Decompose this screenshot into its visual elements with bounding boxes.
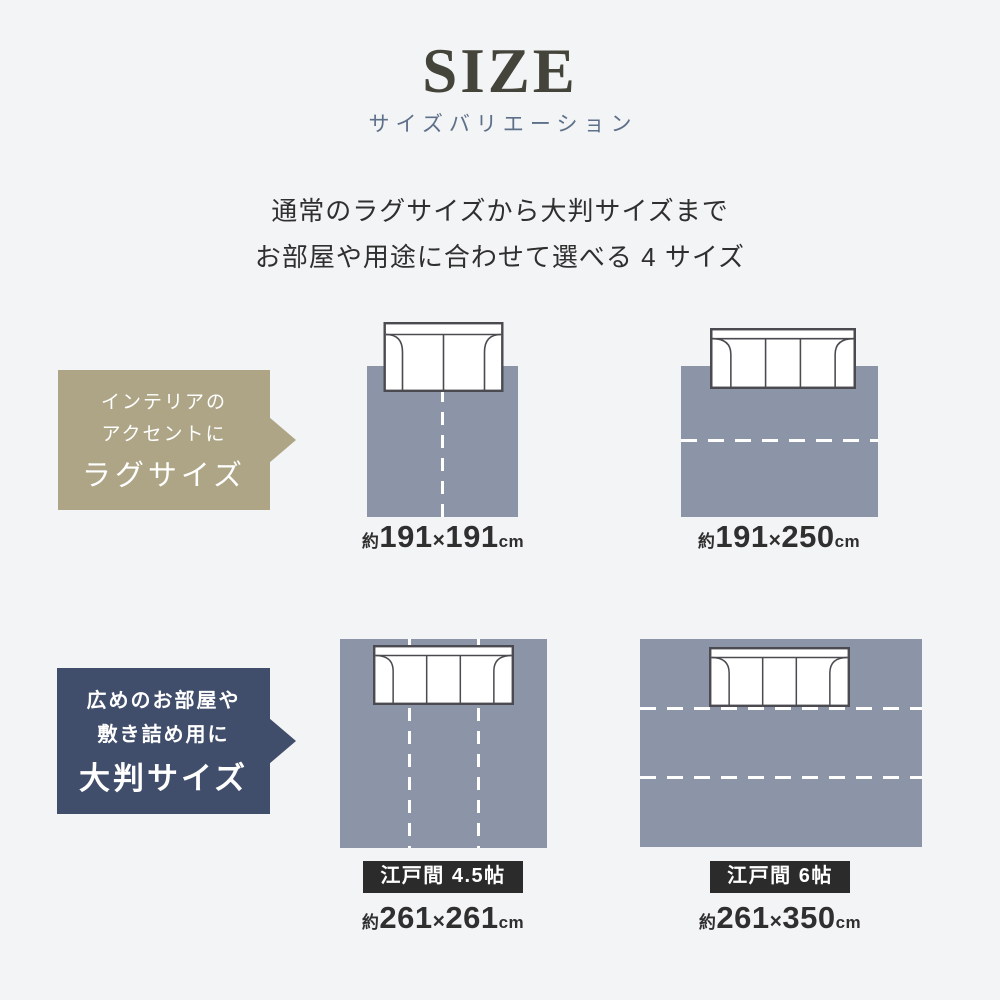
large-badge-title: 大判サイズ — [79, 760, 248, 797]
approx-prefix: 約 — [698, 532, 716, 551]
approx-prefix: 約 — [362, 913, 380, 932]
fold-line-horizontal — [640, 707, 922, 710]
fold-line-horizontal — [681, 439, 878, 442]
approx-prefix: 約 — [362, 532, 380, 551]
width-value: 191 — [715, 519, 768, 554]
rug-badge-line-2: アクセントに — [101, 419, 226, 451]
rug-size-badge: インテリアの アクセントに ラグサイズ — [58, 370, 270, 510]
tatami-size-tag: 江戸間 6帖 — [710, 861, 850, 893]
times-sign: × — [433, 910, 446, 933]
rug-badge-title: ラグサイズ — [82, 459, 246, 494]
size-label-191x191: 約191×191cm — [333, 519, 553, 560]
large-size-badge: 広めのお部屋や 敷き詰め用に 大判サイズ — [57, 668, 270, 814]
description-line-2: お部屋や用途に合わせて選べる 4 サイズ — [0, 234, 1000, 280]
width-value: 261 — [716, 900, 769, 935]
size-label-261x350: 約261×350cm — [670, 900, 890, 941]
unit-cm: cm — [835, 532, 861, 551]
times-sign: × — [770, 910, 783, 933]
size-label-191x250: 約191×250cm — [669, 519, 889, 560]
unit-cm: cm — [499, 532, 525, 551]
size-label-261x261: 約261×261cm — [333, 900, 553, 941]
sofa-2seat-top-view-icon — [383, 322, 504, 392]
large-badge-line-1: 広めのお部屋や — [87, 684, 241, 718]
unit-cm: cm — [499, 913, 525, 932]
page-title: SIZE — [0, 40, 1000, 103]
rug-badge-line-1: インテリアの — [101, 387, 227, 419]
size-description: 通常のラグサイズから大判サイズまで お部屋や用途に合わせて選べる 4 サイズ — [0, 188, 1000, 280]
depth-value: 250 — [781, 519, 834, 554]
sofa-3seat-top-view-icon — [710, 328, 856, 389]
depth-value: 191 — [445, 519, 498, 554]
description-line-1: 通常のラグサイズから大判サイズまで — [0, 188, 1000, 234]
width-value: 191 — [379, 519, 432, 554]
size-variation-infographic: SIZE サイズバリエーション 通常のラグサイズから大判サイズまで お部屋や用途… — [0, 0, 1000, 1000]
times-sign: × — [769, 529, 782, 552]
right-arrow-icon — [269, 718, 296, 764]
depth-value: 261 — [445, 900, 498, 935]
large-badge-line-2: 敷き詰め用に — [98, 718, 230, 752]
fold-line-horizontal — [640, 776, 922, 779]
depth-value: 350 — [782, 900, 835, 935]
page-subtitle: サイズバリエーション — [0, 112, 1000, 137]
sofa-3seat-top-view-icon — [709, 647, 850, 707]
approx-prefix: 約 — [699, 913, 717, 932]
width-value: 261 — [379, 900, 432, 935]
right-arrow-icon — [269, 417, 296, 463]
tatami-tag-wrap: 江戸間 4.5帖 — [343, 861, 543, 893]
unit-cm: cm — [836, 913, 862, 932]
sofa-3seat-top-view-icon — [373, 645, 514, 705]
tatami-tag-wrap: 江戸間 6帖 — [680, 861, 880, 893]
tatami-size-tag: 江戸間 4.5帖 — [363, 861, 522, 893]
times-sign: × — [433, 529, 446, 552]
